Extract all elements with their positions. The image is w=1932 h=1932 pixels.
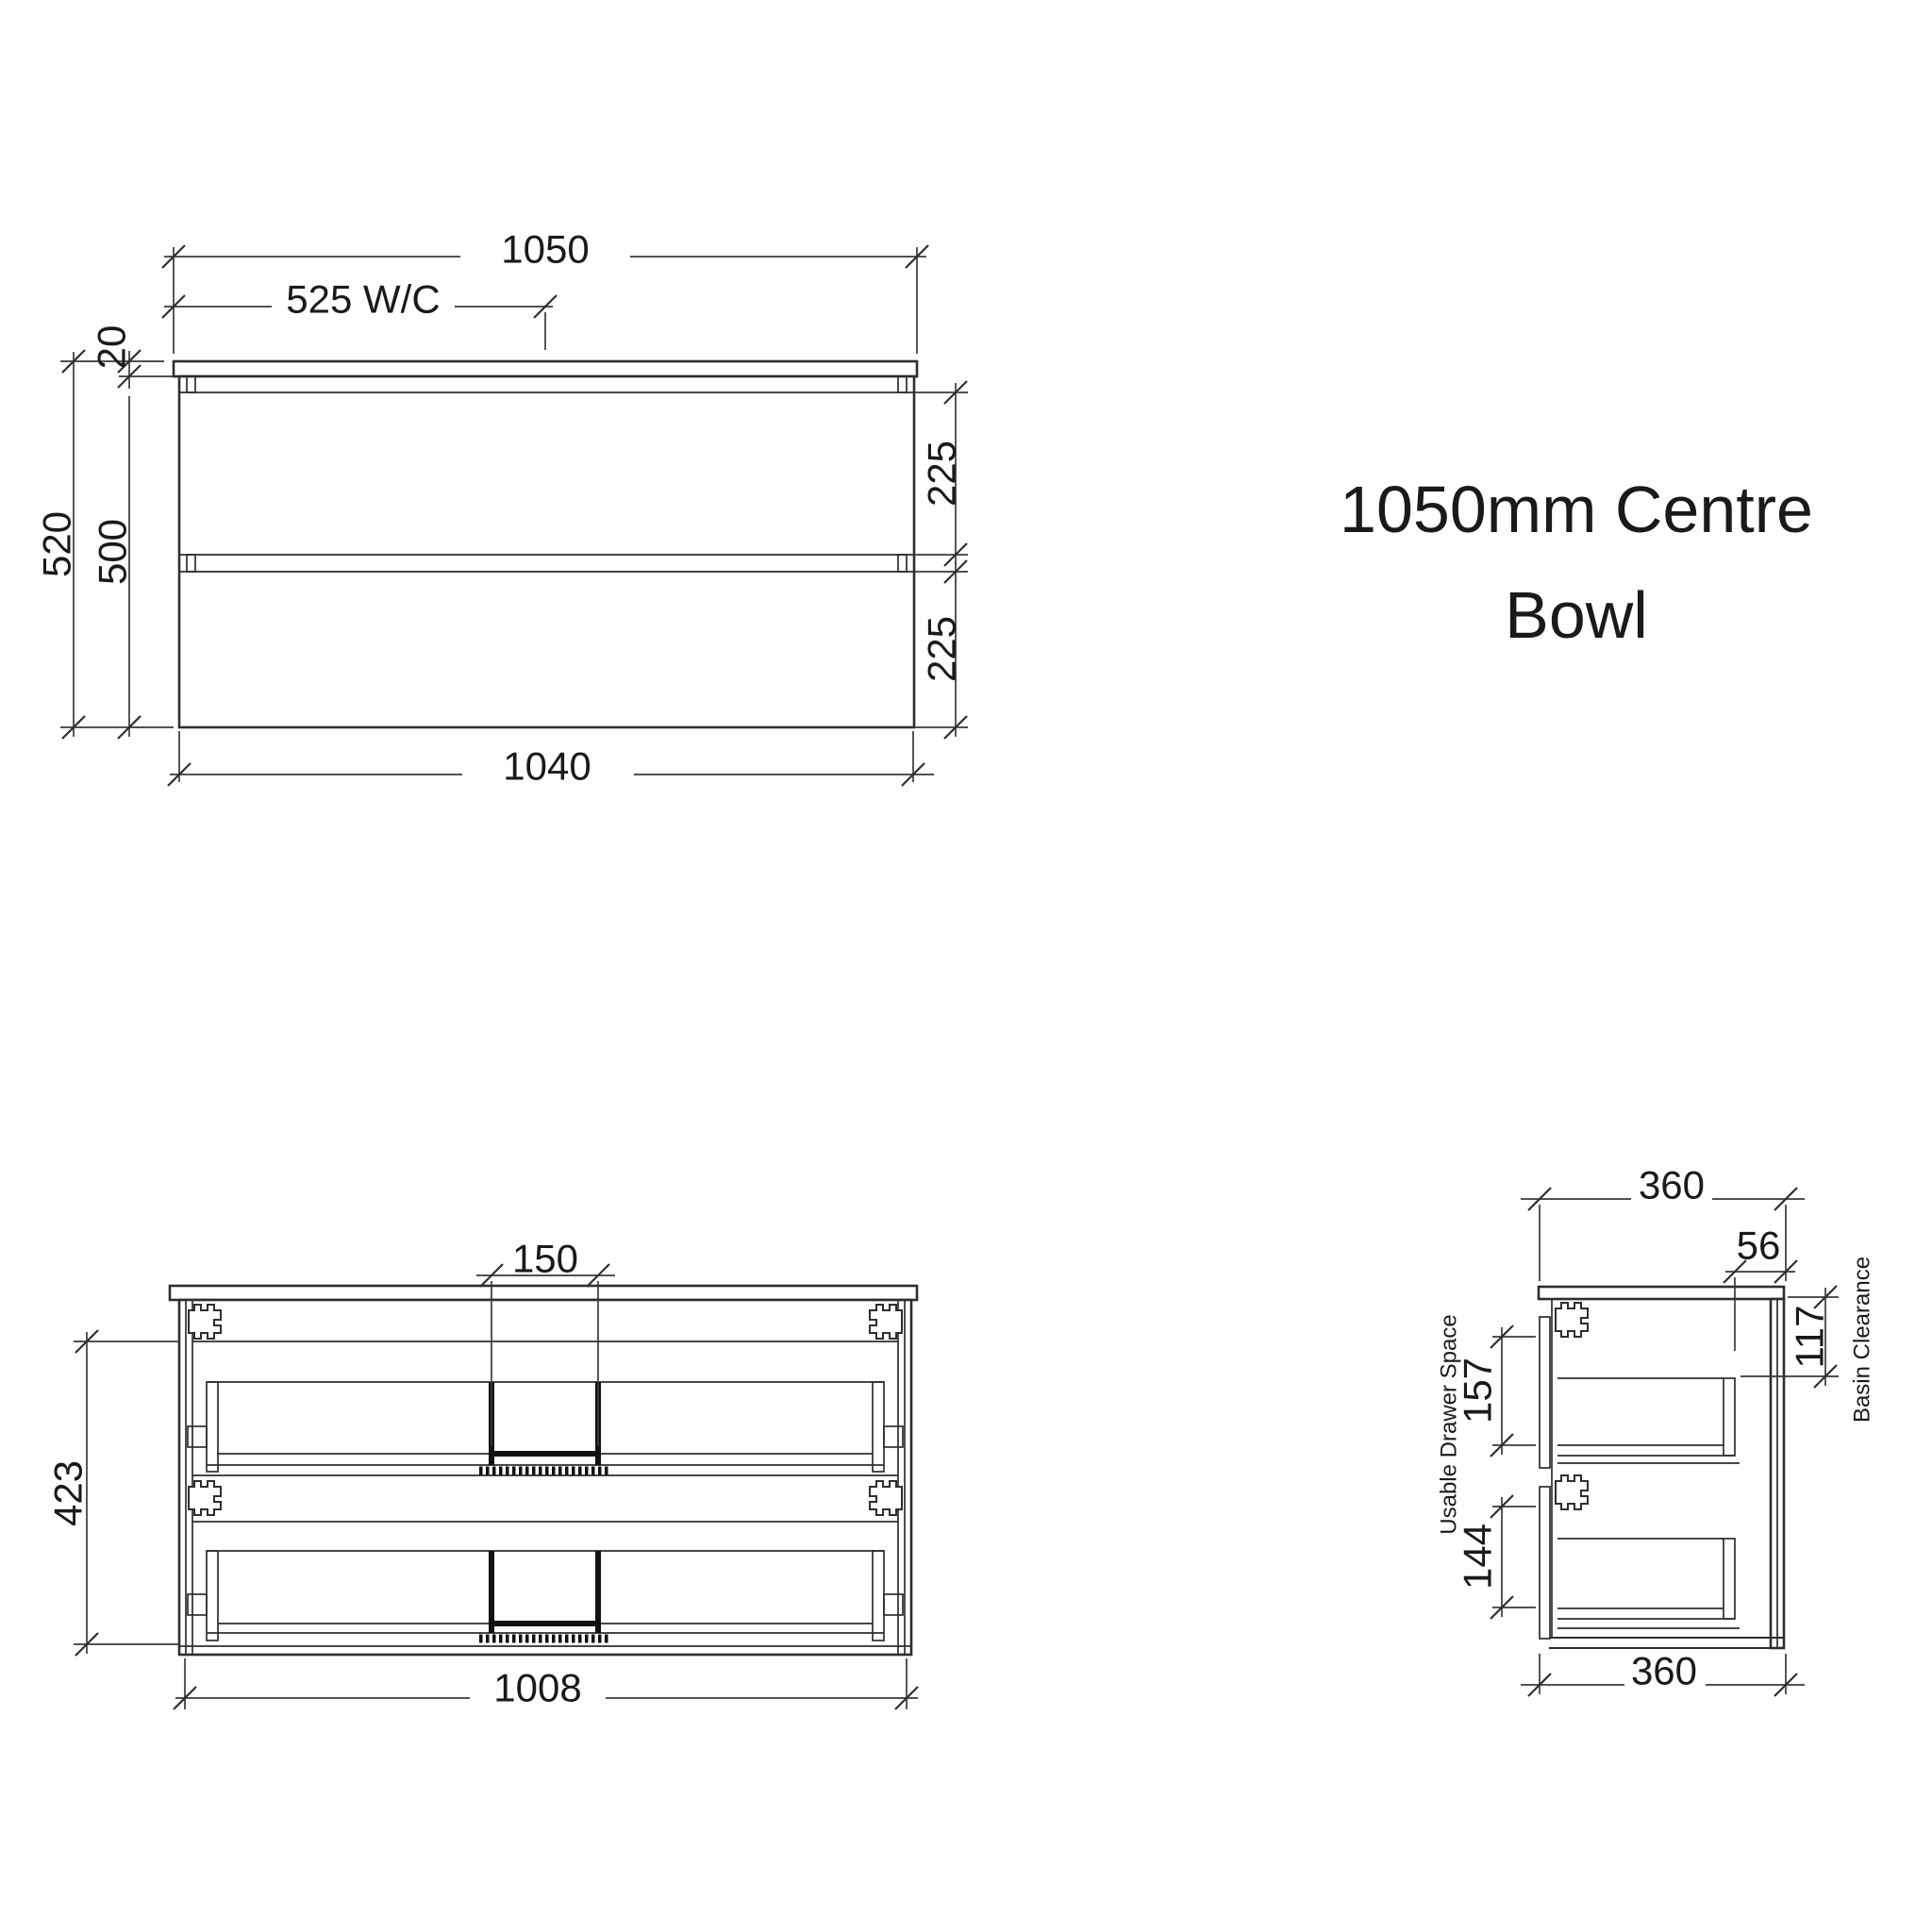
dim-internal-height: 423 [46,1330,180,1656]
usable-drawer-space-label: Usable Drawer Space [1437,1314,1462,1534]
dim-text: 225 [920,441,964,507]
carcass-outline [179,1300,911,1655]
dim-bottom-drawer: 225 [914,560,968,739]
dim-text: 20 [90,325,134,370]
drawing-sheet: 1050 525 W/C 20 520 [0,0,1932,1932]
dim-text: 1008 [493,1666,581,1710]
dim-text: 360 [1639,1163,1705,1207]
dim-text: 117 [1788,1306,1832,1369]
dim-text: 500 [91,519,135,585]
dim-depth-bottom: 360 [1521,1649,1805,1697]
top-drawer-section [1557,1378,1740,1463]
cam-bracket-icon [1556,1475,1588,1509]
dim-text: 144 [1456,1524,1500,1590]
dim-text: 360 [1631,1649,1697,1693]
technical-drawing: 1050 525 W/C 20 520 [0,0,1932,1932]
dim-text: 150 [512,1237,578,1281]
drawer-front-bottom [1540,1487,1550,1639]
drawer-back [1724,1378,1735,1456]
benchtop-outline [174,361,917,376]
dim-drawer-space-bottom: 144 [1456,1495,1537,1619]
title-line-2: Bowl [1505,578,1648,652]
dim-internal-width: 1008 [174,1658,918,1710]
dim-text: 225 [920,616,964,682]
benchtop [174,361,917,376]
cabinet-body [179,376,914,727]
dim-centre-wc: 525 W/C [162,277,557,351]
dim-text: 423 [46,1460,91,1526]
dim-cabinet-width: 1040 [168,731,934,789]
side-section-view: 360 56 117 Basin Clearance 157 [1437,1163,1875,1697]
dim-basin-clearance: 117 Basin Clearance [1740,1257,1875,1423]
dim-drawer-space-top: 157 [1456,1325,1537,1457]
title-line-1: 1050mm Centre [1340,473,1813,546]
dim-text: 525 W/C [286,277,440,322]
dim-top-drawer: 225 [914,381,968,566]
dim-text: 157 [1456,1357,1500,1424]
bottom-drawer-section [1557,1539,1740,1628]
internal-front-view: 150 423 1008 [46,1237,919,1710]
dim-text: 1040 [503,744,591,789]
cabinet-outline [179,376,914,727]
basin-clearance-label: Basin Clearance [1850,1257,1875,1423]
benchtop-outline [1539,1287,1784,1299]
dim-text: 1050 [501,227,589,272]
dim-cabinet-height: 500 [91,396,142,739]
drawer-front-top [1540,1317,1550,1468]
dim-text: 520 [35,511,79,577]
drawer-back [1724,1539,1735,1619]
front-elevation-view: 1050 525 W/C 20 520 [35,227,969,789]
benchtop-outline [170,1286,917,1300]
drawing-title: 1050mm Centre Bowl [1340,473,1813,652]
cam-bracket-icon [1556,1303,1588,1337]
dim-text: 56 [1737,1224,1781,1268]
